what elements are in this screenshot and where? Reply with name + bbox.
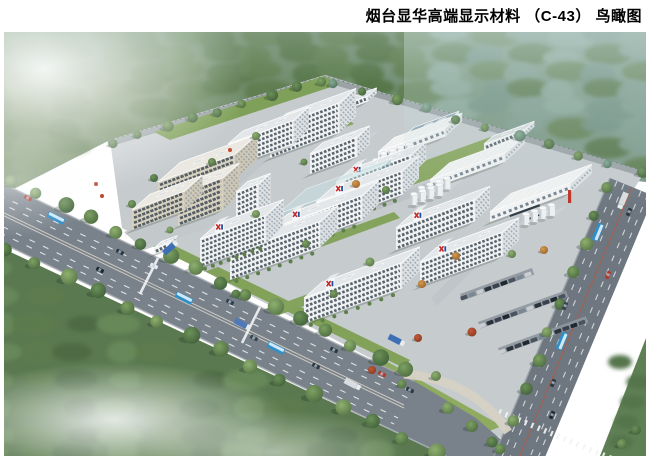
page: 烟台显华高端显示材料 （C-43） 鸟瞰图 (0, 0, 650, 460)
aerial-rendering (4, 32, 646, 456)
aerial-view-svg (4, 32, 646, 456)
page-title: 烟台显华高端显示材料 （C-43） 鸟瞰图 (366, 5, 642, 26)
